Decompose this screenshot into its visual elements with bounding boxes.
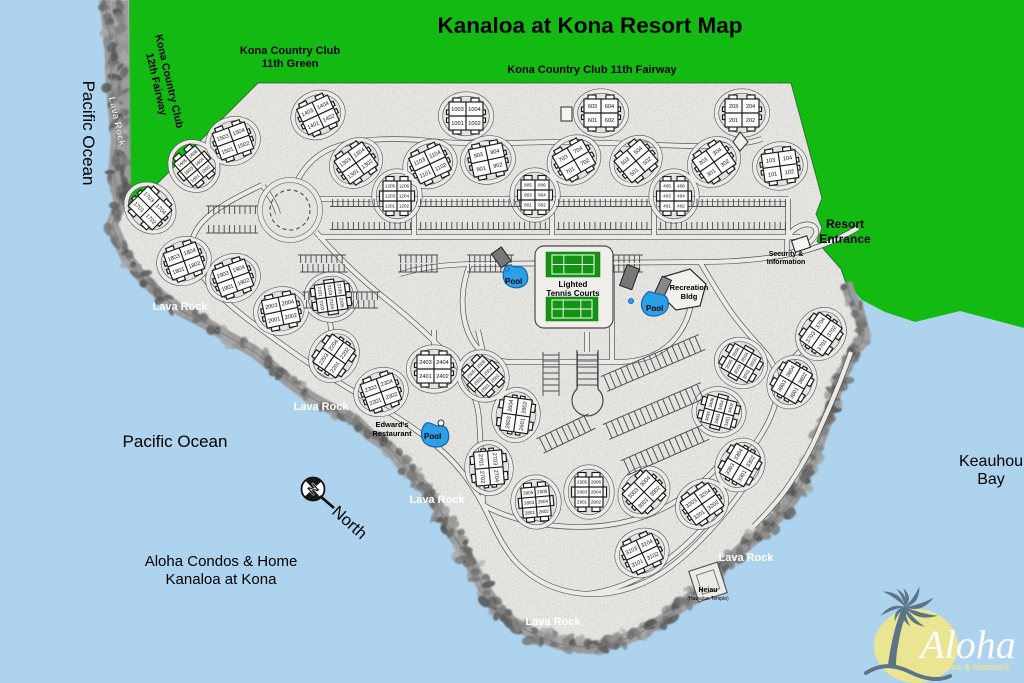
svg-text:Heiau: Heiau bbox=[698, 587, 717, 594]
svg-text:1202: 1202 bbox=[399, 204, 410, 209]
svg-text:1206: 1206 bbox=[399, 184, 410, 189]
svg-text:406: 406 bbox=[677, 184, 685, 189]
svg-text:Lava Rock: Lava Rock bbox=[293, 401, 349, 413]
svg-text:802: 802 bbox=[538, 203, 546, 208]
svg-text:602: 602 bbox=[605, 118, 614, 124]
svg-text:2802: 2802 bbox=[539, 509, 550, 515]
svg-text:Bay: Bay bbox=[977, 471, 1005, 488]
svg-text:604: 604 bbox=[605, 104, 614, 110]
svg-text:1004: 1004 bbox=[468, 107, 480, 113]
svg-text:804: 804 bbox=[538, 193, 546, 198]
svg-text:Pool: Pool bbox=[424, 432, 441, 441]
svg-text:Entrance: Entrance bbox=[819, 232, 871, 246]
svg-text:2702: 2702 bbox=[478, 471, 485, 484]
svg-text:2902: 2902 bbox=[591, 500, 602, 505]
svg-text:2803: 2803 bbox=[524, 500, 535, 506]
svg-text:2901: 2901 bbox=[577, 500, 588, 505]
svg-text:2905: 2905 bbox=[577, 480, 588, 485]
svg-text:Security &: Security & bbox=[769, 251, 804, 258]
svg-text:Information: Information bbox=[767, 259, 806, 266]
svg-text:2805: 2805 bbox=[523, 490, 534, 496]
svg-text:402: 402 bbox=[677, 204, 685, 209]
svg-text:2704: 2704 bbox=[492, 469, 499, 482]
svg-text:405: 405 bbox=[663, 184, 671, 189]
svg-text:2403: 2403 bbox=[419, 360, 431, 366]
svg-text:1203: 1203 bbox=[385, 194, 396, 199]
svg-text:1204: 1204 bbox=[399, 194, 410, 199]
svg-text:1205: 1205 bbox=[385, 184, 396, 189]
svg-text:2404: 2404 bbox=[436, 360, 448, 366]
svg-text:401: 401 bbox=[663, 204, 671, 209]
svg-text:2401: 2401 bbox=[419, 374, 431, 380]
svg-text:Pool: Pool bbox=[505, 277, 522, 286]
svg-text:Edward's: Edward's bbox=[375, 420, 408, 429]
svg-text:Recreation: Recreation bbox=[670, 283, 709, 292]
svg-text:Kanaloa at Kona Resort Map: Kanaloa at Kona Resort Map bbox=[437, 13, 742, 38]
svg-text:Lava Rock: Lava Rock bbox=[409, 494, 465, 506]
svg-text:Tennis Courts: Tennis Courts bbox=[546, 289, 600, 298]
svg-text:2801: 2801 bbox=[525, 510, 536, 516]
svg-text:1002: 1002 bbox=[468, 121, 480, 127]
svg-text:11th Green: 11th Green bbox=[262, 58, 319, 70]
svg-text:Lava Rock: Lava Rock bbox=[525, 616, 581, 628]
svg-text:2806: 2806 bbox=[537, 489, 548, 495]
svg-text:Lava Rock: Lava Rock bbox=[152, 301, 208, 313]
svg-text:803: 803 bbox=[524, 193, 532, 198]
svg-text:Aloha Condos & Home: Aloha Condos & Home bbox=[145, 553, 298, 570]
svg-text:2903: 2903 bbox=[577, 490, 588, 495]
svg-text:2701: 2701 bbox=[477, 454, 484, 467]
svg-text:Kona Country Club: Kona Country Club bbox=[240, 45, 340, 57]
svg-text:Keauhou: Keauhou bbox=[959, 453, 1023, 470]
svg-text:Kona Country Club 11th Fairway: Kona Country Club 11th Fairway bbox=[507, 64, 677, 76]
svg-text:204: 204 bbox=[746, 104, 755, 110]
svg-text:603: 603 bbox=[588, 104, 597, 110]
svg-text:Restaurant: Restaurant bbox=[372, 429, 412, 438]
svg-text:1001: 1001 bbox=[451, 121, 463, 127]
svg-text:Bldg: Bldg bbox=[681, 292, 698, 301]
svg-text:Aloha: Aloha bbox=[917, 622, 1016, 667]
svg-text:801: 801 bbox=[524, 203, 532, 208]
svg-text:(Hawaiian Temple): (Hawaiian Temple) bbox=[687, 596, 729, 602]
svg-text:1003: 1003 bbox=[451, 107, 463, 113]
svg-text:Resort: Resort bbox=[826, 217, 864, 231]
svg-text:Pacific Ocean: Pacific Ocean bbox=[79, 81, 98, 186]
svg-text:2904: 2904 bbox=[591, 490, 602, 495]
svg-text:1201: 1201 bbox=[385, 204, 396, 209]
svg-text:2703: 2703 bbox=[491, 453, 498, 466]
svg-text:2402: 2402 bbox=[436, 374, 448, 380]
svg-text:201: 201 bbox=[729, 118, 738, 124]
svg-text:Pool: Pool bbox=[646, 304, 663, 313]
svg-text:2906: 2906 bbox=[591, 480, 602, 485]
svg-text:202: 202 bbox=[746, 118, 755, 124]
svg-text:806: 806 bbox=[538, 183, 546, 188]
svg-text:Pacific Ocean: Pacific Ocean bbox=[123, 432, 228, 451]
svg-text:403: 403 bbox=[663, 194, 671, 199]
svg-text:Condos & Homes®: Condos & Homes® bbox=[928, 662, 1010, 672]
svg-text:601: 601 bbox=[588, 118, 597, 124]
svg-text:805: 805 bbox=[524, 183, 532, 188]
svg-text:Lava Rock: Lava Rock bbox=[718, 552, 774, 564]
svg-text:2804: 2804 bbox=[538, 499, 549, 505]
svg-text:404: 404 bbox=[677, 194, 685, 199]
svg-text:Lighted: Lighted bbox=[559, 280, 588, 289]
svg-text:203: 203 bbox=[729, 104, 738, 110]
svg-text:Kanaloa at Kona: Kanaloa at Kona bbox=[166, 571, 278, 588]
